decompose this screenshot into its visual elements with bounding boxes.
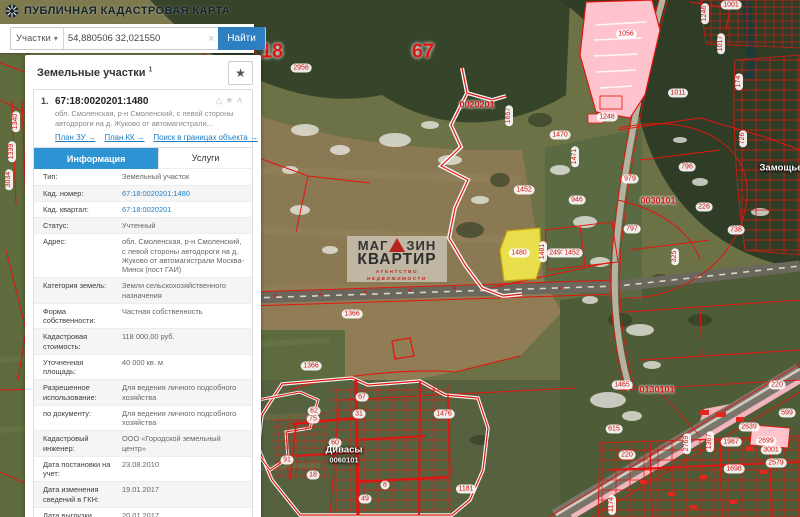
info-row: по документу:Для ведения личного подсобн… (34, 406, 252, 432)
chevron-down-icon: ▾ (54, 34, 58, 43)
info-value: 19.01.2017 (120, 482, 252, 507)
info-value: Для ведения личного подсобного хозяйства (120, 406, 252, 431)
cadastral-number: 67:18:0020201:1480 (55, 96, 148, 107)
info-label: по документу: (34, 406, 120, 431)
results-panel: Земельные участки 1 ★ 1. 67:18:0020201:1… (25, 55, 261, 517)
info-value: Земельный участок (120, 169, 252, 184)
info-row: Тип:Земельный участок (34, 169, 252, 185)
info-label: Кад. квартал: (34, 202, 120, 217)
info-label: Кадастровая стоимость: (34, 329, 120, 354)
info-value: обл. Смоленская, р-н Смоленский, с левой… (120, 234, 252, 277)
info-label: Категория земель: (34, 278, 120, 303)
info-label: Кад. номер: (34, 186, 120, 201)
search-group: Участки ▾ × Найти (10, 27, 266, 50)
results-title-text: Земельные участки (37, 67, 145, 79)
results-count-sup: 1 (149, 66, 153, 73)
info-row: Кад. номер:67:18:0020201:1480 (34, 186, 252, 202)
info-row: Дата выгрузки сведений из ГКН:20.01.2017 (34, 508, 252, 517)
triangle-logo-icon (389, 238, 405, 252)
info-label: Адрес: (34, 234, 120, 277)
info-label: Дата постановки на учет: (34, 457, 120, 482)
results-header: Земельные участки 1 ★ (25, 55, 261, 87)
info-row: Статус:Учтенный (34, 218, 252, 234)
watermark-line3: АГЕНТСТВО НЕДВИЖИМОСТИ (347, 268, 447, 282)
card-tabs: Информация Услуги (34, 147, 252, 169)
tab-information[interactable]: Информация (34, 148, 158, 169)
app-window: 1867295600202010030101013010110011056124… (0, 0, 800, 517)
plan-kk-link[interactable]: План КК → (105, 133, 145, 142)
search-submit-button[interactable]: Найти (218, 27, 265, 50)
favorites-button[interactable]: ★ (228, 61, 253, 85)
info-label: Тип: (34, 169, 120, 184)
info-value: Учтенный (120, 218, 252, 233)
app-logo-icon (5, 4, 19, 18)
parcel-links: План ЗУ → План КК → Поиск в границах объ… (55, 133, 246, 147)
watermark-line2: КВАРТИР (347, 252, 447, 268)
parcel-card-header[interactable]: 1. 67:18:0020201:1480 △★∧ обл. Смоленска… (34, 90, 252, 147)
info-value: Для ведения личного подсобного хозяйства (120, 380, 252, 405)
info-row: Разрешенное использование:Для ведения ли… (34, 380, 252, 406)
info-value: Земли сельскохозяйственного назначения (120, 278, 252, 303)
info-row: Кадастровый инженер:ООО «Городской земел… (34, 431, 252, 457)
info-row: Дата постановки на учет:23.08.2010 (34, 457, 252, 483)
info-row: Уточненная площадь:40 000 кв. м (34, 355, 252, 381)
parcel-address-short: обл. Смоленская, р-н Смоленский, с левой… (55, 109, 246, 128)
search-bar: Участки ▾ × Найти (0, 24, 254, 53)
info-row: Дата изменения сведений в ГКН:19.01.2017 (34, 482, 252, 508)
info-row: Кадастровая стоимость:118 000,00 руб. (34, 329, 252, 355)
selected-parcel[interactable] (500, 228, 541, 281)
info-label: Дата выгрузки сведений из ГКН: (34, 508, 120, 517)
info-label: Форма собственности: (34, 304, 120, 329)
app-title: ПУБЛИЧНАЯ КАДАСТРОВАЯ КАРТА (24, 5, 230, 17)
info-table: Тип:Земельный участокКад. номер:67:18:00… (34, 169, 252, 517)
search-category-label: Участки (16, 33, 51, 44)
info-label: Статус: (34, 218, 120, 233)
cadastral-link[interactable]: 67:18:0020201:1480 (120, 186, 252, 201)
info-label: Дата изменения сведений в ГКН: (34, 482, 120, 507)
info-value: 40 000 кв. м (120, 355, 252, 380)
agency-watermark: МАГЗИН КВАРТИР АГЕНТСТВО НЕДВИЖИМОСТИ (347, 236, 447, 282)
info-row: Форма собственности:Частная собственност… (34, 304, 252, 330)
search-input[interactable] (64, 28, 204, 49)
info-row: Кад. квартал:67:18:0020201 (34, 202, 252, 218)
watermark-line1: МАГЗИН (347, 238, 447, 252)
info-value: 118 000,00 руб. (120, 329, 252, 354)
info-row: Категория земель:Земли сельскохозяйствен… (34, 278, 252, 304)
app-header: ПУБЛИЧНАЯ КАДАСТРОВАЯ КАРТА (5, 4, 230, 18)
info-value: 20.01.2017 (120, 508, 252, 517)
info-value: 23.08.2010 (120, 457, 252, 482)
plan-zu-link[interactable]: План ЗУ → (55, 133, 96, 142)
cadastral-link[interactable]: 67:18:0020201 (120, 202, 252, 217)
info-value: Частная собственность (120, 304, 252, 329)
tab-services[interactable]: Услуги (158, 148, 252, 169)
info-label: Уточненная площадь: (34, 355, 120, 380)
info-label: Разрешенное использование: (34, 380, 120, 405)
info-value: ООО «Городской земельный центр» (120, 431, 252, 456)
parcel-card: 1. 67:18:0020201:1480 △★∧ обл. Смоленска… (33, 89, 253, 517)
results-title: Земельные участки 1 (37, 67, 152, 79)
search-category-dropdown[interactable]: Участки ▾ (11, 28, 64, 49)
info-row: Адрес:обл. Смоленская, р-н Смоленский, с… (34, 234, 252, 278)
card-action-icons[interactable]: △★∧ (215, 95, 246, 106)
result-index: 1. (41, 96, 55, 106)
search-in-bounds-link[interactable]: Поиск в границах объекта → (154, 133, 258, 142)
clear-search-icon[interactable]: × (204, 33, 218, 45)
info-label: Кадастровый инженер: (34, 431, 120, 456)
